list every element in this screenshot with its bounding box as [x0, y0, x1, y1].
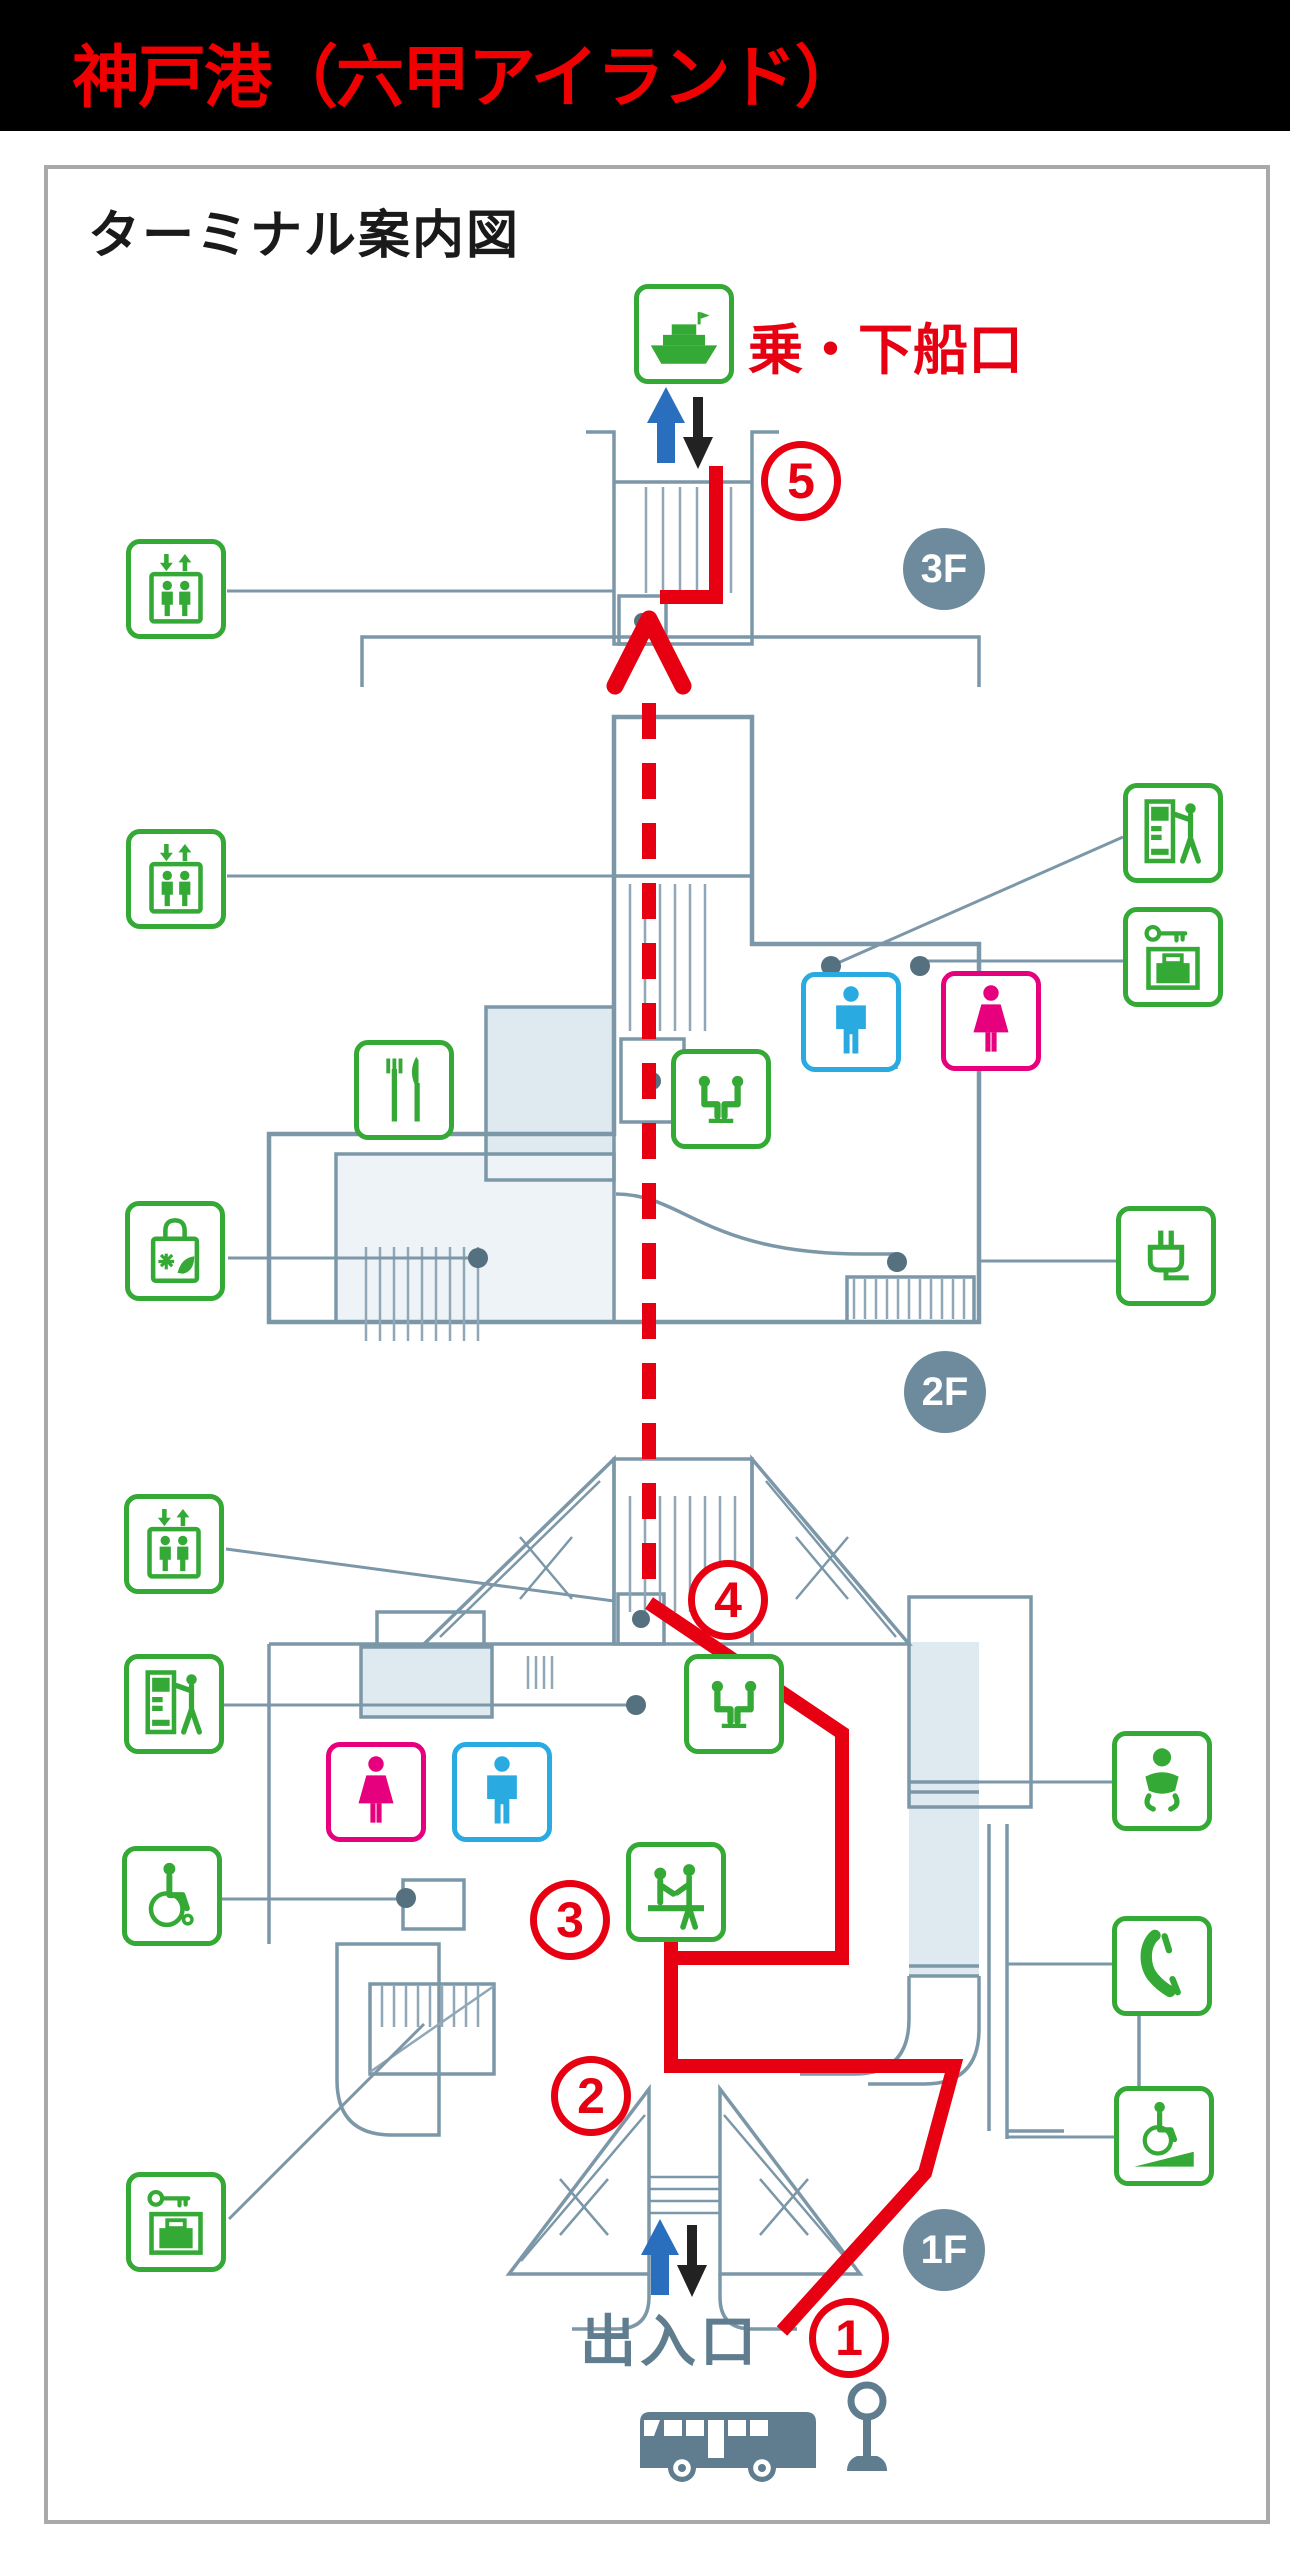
floor-badge-2f: 2F [904, 1351, 986, 1433]
lounge-icon-2f [671, 1049, 771, 1149]
elevator-icon-3f [126, 539, 226, 639]
page-title: 神戸港（六甲アイランド） [72, 22, 861, 121]
route-step-3: 3 [530, 1880, 610, 1960]
floor-plan-drawing [48, 169, 1266, 2520]
boarding-ship-icon [634, 284, 734, 384]
vending-machine-icon-2f [1123, 783, 1223, 883]
public-phone-icon-1f [1112, 1916, 1212, 2016]
womens-toilet-icon-1f [326, 1742, 426, 1842]
mens-toilet-icon-1f [452, 1742, 552, 1842]
coin-locker-icon-2f [1123, 907, 1223, 1007]
restaurant-icon-2f [354, 1040, 454, 1140]
reception-counter-icon-1f [626, 1842, 726, 1942]
mens-toilet-icon-2f [801, 972, 901, 1072]
terminal-guide-page: 神戸港（六甲アイランド） [0, 0, 1290, 2555]
shop-icon-2f [125, 1201, 225, 1301]
coin-locker-icon-1f [126, 2172, 226, 2272]
route-step-1: 1 [809, 2298, 889, 2378]
floor-badge-3f: 3F [903, 528, 985, 610]
wheelchair-slope-icon-1f [1114, 2086, 1214, 2186]
map-title: ターミナル案内図 [88, 193, 520, 268]
bus-stop-icon [839, 2381, 895, 2475]
power-outlet-icon-2f [1116, 1206, 1216, 1306]
boarding-gate-label: 乗・下船口 [748, 305, 1023, 385]
route-step-5: 5 [761, 441, 841, 521]
entrance-exit-label: 出入口 [580, 2297, 760, 2378]
route-step-4: 4 [688, 1560, 768, 1640]
floor-badge-1f: 1F [903, 2209, 985, 2291]
map-panel: ターミナル案内図 乗・下船口 出入口 3F 2F 1F 1 2 3 4 5 [44, 165, 1270, 2524]
route-step-2: 2 [551, 2056, 631, 2136]
womens-toilet-icon-2f [941, 971, 1041, 1071]
baby-care-icon-1f [1112, 1731, 1212, 1831]
lounge-icon-1f [684, 1654, 784, 1754]
header-bar: 神戸港（六甲アイランド） [0, 0, 1290, 131]
elevator-icon-2f [126, 829, 226, 929]
wheelchair-icon-1f [122, 1846, 222, 1946]
bus-icon [634, 2406, 822, 2482]
vending-machine-icon-1f [124, 1654, 224, 1754]
terminal-map: ターミナル案内図 乗・下船口 出入口 3F 2F 1F 1 2 3 4 5 [48, 169, 1266, 2520]
elevator-icon-1f [124, 1494, 224, 1594]
